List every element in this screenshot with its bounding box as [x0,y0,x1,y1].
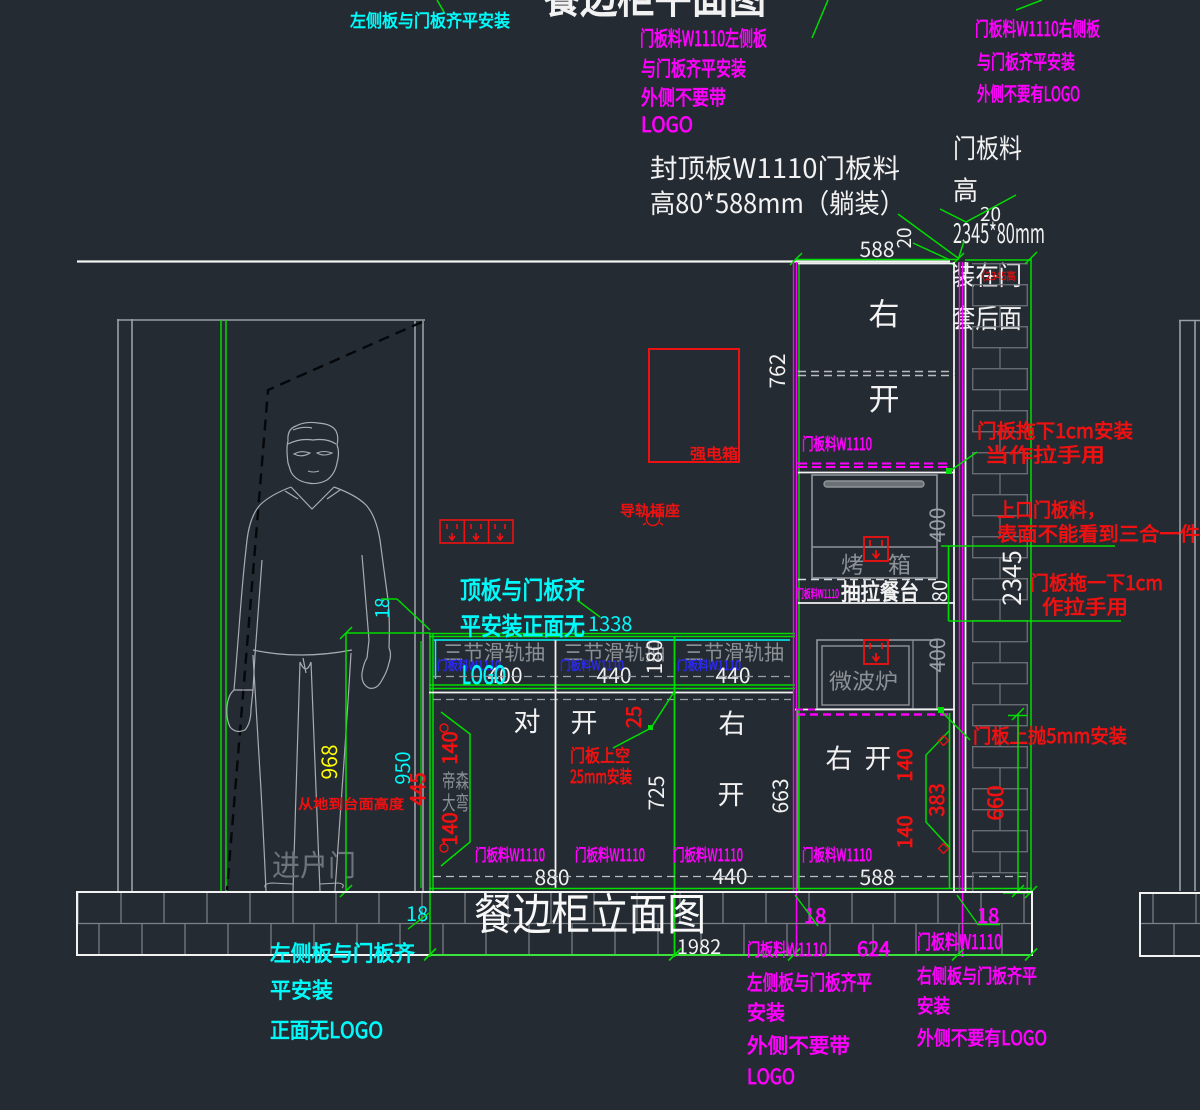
svg-text:进户门: 进户门 [272,841,356,885]
svg-text:安装: 安装 [917,990,951,1019]
svg-text:400: 400 [922,508,952,543]
svg-text:抽拉餐台: 抽拉餐台 [841,573,919,607]
svg-text:餐边柜立面图: 餐边柜立面图 [474,879,706,943]
svg-text:左侧板与门板齐平安装: 左侧板与门板齐平安装 [349,7,511,33]
svg-text:作拉手用: 作拉手用 [1042,591,1128,620]
svg-text:开: 开 [571,701,598,740]
svg-text:左侧板与门板齐平: 左侧板与门板齐平 [746,967,872,997]
svg-text:18: 18 [804,900,826,929]
svg-text:平安装: 平安装 [270,973,333,1005]
svg-text:445: 445 [402,772,431,805]
svg-text:与门板齐平安装: 与门板齐平安装 [977,46,1076,75]
svg-text:顶板与门板齐: 顶板与门板齐 [460,571,586,607]
svg-text:20: 20 [890,227,917,248]
svg-text:外侧不要带: 外侧不要带 [641,82,726,112]
svg-text:门板料W1110: 门板料W1110 [797,585,839,602]
svg-text:开: 开 [718,773,745,812]
svg-text:右: 右 [869,289,900,334]
svg-text:微波炉: 微波炉 [829,664,898,696]
svg-text:663: 663 [765,779,795,814]
svg-text:968: 968 [314,745,344,780]
svg-text:外侧不要有LOGO: 外侧不要有LOGO [917,1022,1047,1051]
svg-text:开: 开 [865,737,892,776]
svg-text:660: 660 [980,786,1010,821]
svg-text:封顶板W1110门板料: 封顶板W1110门板料 [650,147,900,186]
svg-text:高: 高 [953,169,978,208]
svg-text:门板料W1110: 门板料W1110 [575,841,645,866]
svg-text:LOGO: LOGO [747,1061,795,1091]
svg-text:与门板齐平安装: 与门板齐平安装 [641,53,747,83]
svg-text:440: 440 [713,861,748,891]
svg-text:门板上抛5mm安装: 门板上抛5mm安装 [973,720,1128,749]
svg-text:25: 25 [618,706,647,728]
svg-text:18: 18 [368,597,395,618]
svg-text:平安装正面无: 平安装正面无 [460,607,585,643]
svg-text:右侧板与门板齐平: 右侧板与门板齐平 [917,960,1037,989]
svg-text:624: 624 [857,933,890,962]
svg-text:门板料W1110右侧板: 门板料W1110右侧板 [975,13,1101,42]
svg-text:左侧板与门板齐: 左侧板与门板齐 [270,936,416,968]
svg-text:高80*588mm（躺装）: 高80*588mm（躺装） [650,182,905,221]
svg-text:大弯: 大弯 [442,787,469,816]
svg-text:安装: 安装 [747,997,786,1027]
svg-text:25mm安装: 25mm安装 [570,763,633,789]
svg-text:门板料W1110: 门板料W1110 [747,936,827,962]
svg-text:开: 开 [869,374,900,419]
svg-text:140: 140 [889,748,918,781]
svg-text:LOGO: LOGO [462,656,506,692]
svg-text:2345: 2345 [993,550,1029,606]
svg-text:表面不能看到三合一件: 表面不能看到三合一件 [997,518,1200,547]
svg-text:门板料: 门板料 [953,127,1022,166]
svg-text:140: 140 [889,815,918,848]
svg-text:762: 762 [762,354,792,389]
svg-text:外侧不要有LOGO: 外侧不要有LOGO [977,78,1080,107]
svg-text:外侧不要带: 外侧不要带 [747,1030,850,1060]
svg-text:725: 725 [641,776,671,811]
svg-text:强电箱: 强电箱 [690,443,738,464]
svg-text:右: 右 [826,737,853,776]
svg-text:从地到台面高度: 从地到台面高度 [298,794,405,814]
svg-text:正面无LOGO: 正面无LOGO [270,1013,383,1045]
svg-text:180: 180 [639,640,669,675]
svg-text:383: 383 [921,783,950,816]
svg-text:导轨插座: 导轨插座 [620,500,680,521]
svg-text:门板料W1110: 门板料W1110 [917,926,1002,955]
svg-text:LOGO: LOGO [641,109,693,139]
svg-text:当作拉手用: 当作拉手用 [985,439,1105,468]
svg-text:对: 对 [514,700,541,739]
svg-text:140: 140 [434,731,463,764]
svg-text:门板料W1110左侧板: 门板料W1110左侧板 [640,23,768,53]
svg-text:门板料W1110: 门板料W1110 [802,430,872,455]
svg-text:400: 400 [922,638,952,673]
svg-text:140: 140 [434,812,463,845]
svg-text:右: 右 [719,702,746,741]
